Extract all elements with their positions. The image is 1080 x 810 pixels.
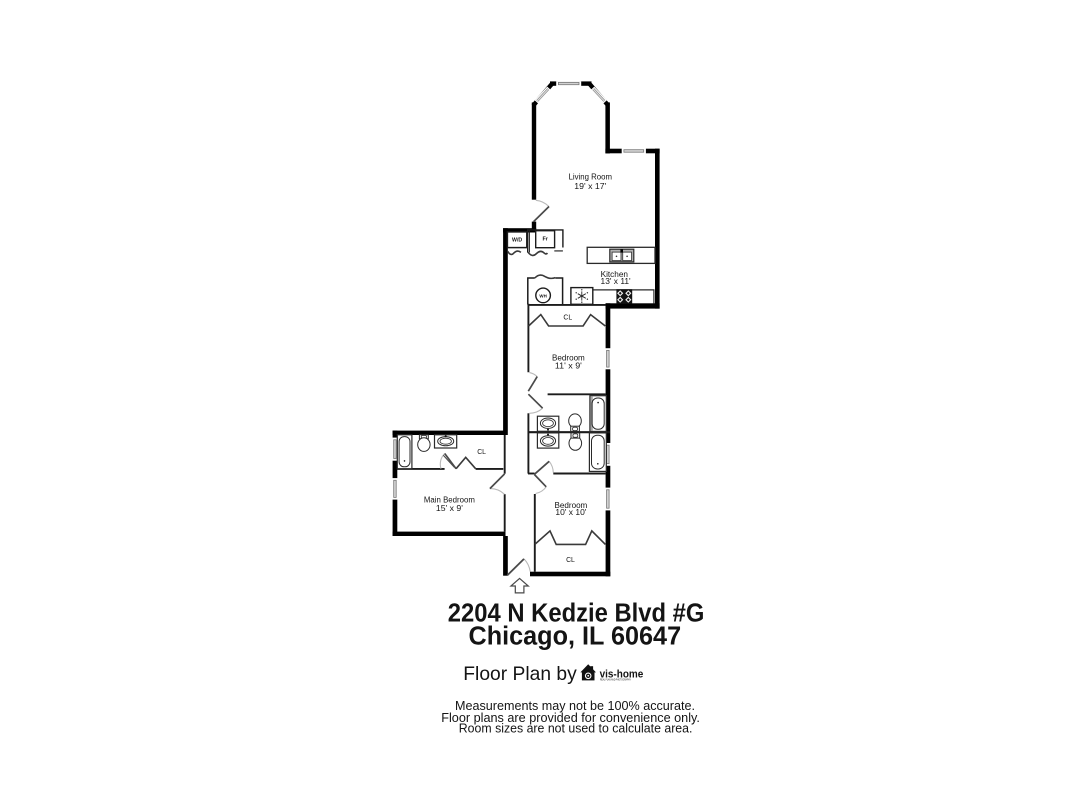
- svg-text:REAL PLAN AND PHOTOGRAPHY: REAL PLAN AND PHOTOGRAPHY: [600, 677, 631, 681]
- svg-text:Floor Plan by: Floor Plan by: [463, 663, 577, 685]
- svg-text:Living Room: Living Room: [569, 172, 613, 181]
- svg-text:Fr: Fr: [542, 237, 548, 243]
- svg-text:Room sizes are not used to cal: Room sizes are not used to calculate are…: [459, 720, 693, 735]
- svg-text:19' x 17': 19' x 17': [574, 182, 607, 191]
- svg-text:CL: CL: [477, 447, 486, 456]
- svg-text:Chicago, IL 60647: Chicago, IL 60647: [469, 622, 682, 650]
- svg-text:13' x 11': 13' x 11': [601, 277, 632, 286]
- svg-text:11' x 9': 11' x 9': [555, 361, 583, 370]
- svg-text:15' x 9': 15' x 9': [436, 504, 464, 513]
- svg-text:WH: WH: [539, 293, 546, 298]
- svg-text:CL: CL: [563, 312, 572, 321]
- svg-text:CL: CL: [566, 555, 575, 564]
- svg-text:W/D: W/D: [512, 238, 522, 244]
- svg-text:10' x 10': 10' x 10': [555, 508, 587, 517]
